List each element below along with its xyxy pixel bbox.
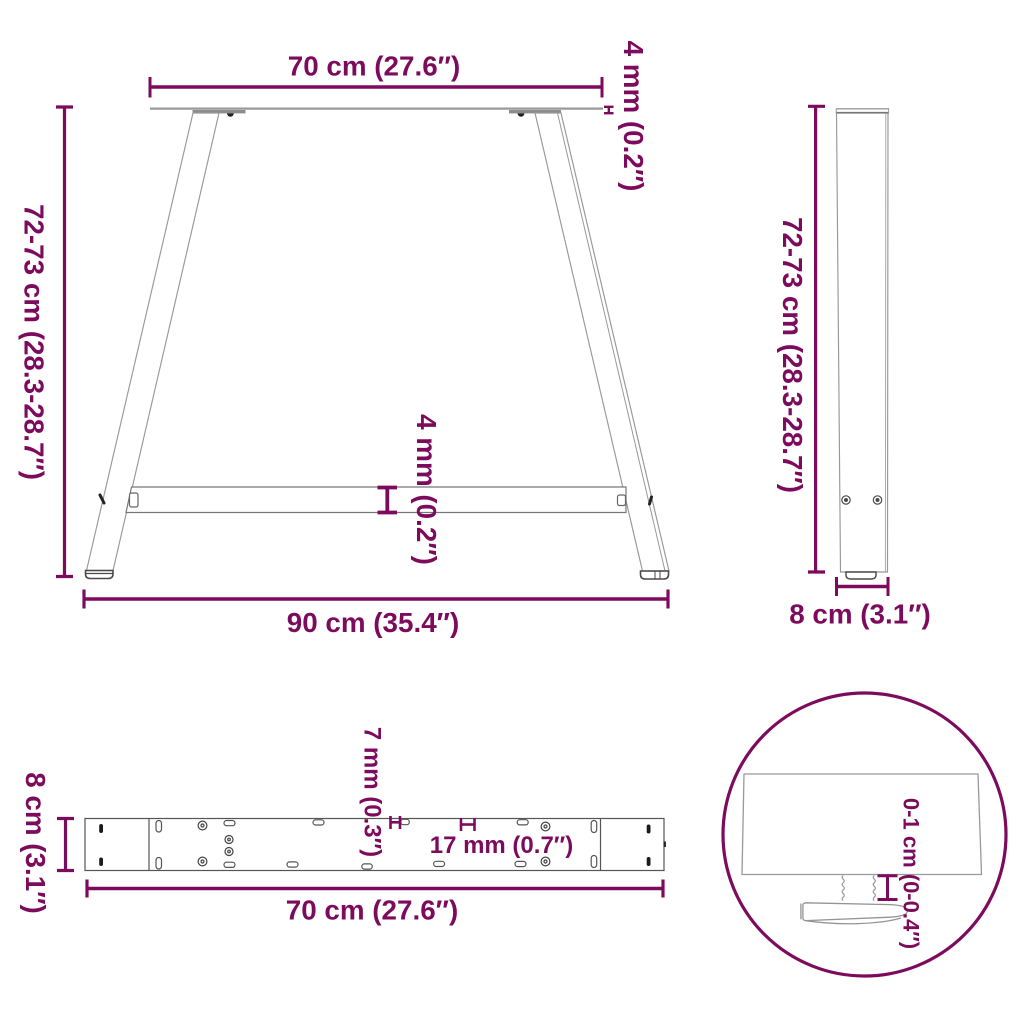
svg-text:4 mm (0.2″): 4 mm (0.2″) [411,414,442,565]
svg-text:8 cm (3.1″): 8 cm (3.1″) [789,599,931,630]
svg-text:70 cm (27.6″): 70 cm (27.6″) [286,895,458,926]
svg-text:72-73 cm (28.3-28.7″): 72-73 cm (28.3-28.7″) [777,217,808,493]
svg-text:7 mm (0.3″): 7 mm (0.3″) [359,727,386,857]
svg-text:90 cm (35.4″): 90 cm (35.4″) [287,607,459,638]
svg-text:0-1 cm (0-0.4″): 0-1 cm (0-0.4″) [899,798,924,949]
svg-text:17 mm (0.7″): 17 mm (0.7″) [430,832,574,859]
svg-text:72-73 cm (28.3-28.7″): 72-73 cm (28.3-28.7″) [19,204,50,480]
svg-text:8 cm (3.1″): 8 cm (3.1″) [20,772,51,914]
svg-text:4 mm (0.2″): 4 mm (0.2″) [618,41,649,192]
svg-text:70 cm (27.6″): 70 cm (27.6″) [288,51,460,82]
